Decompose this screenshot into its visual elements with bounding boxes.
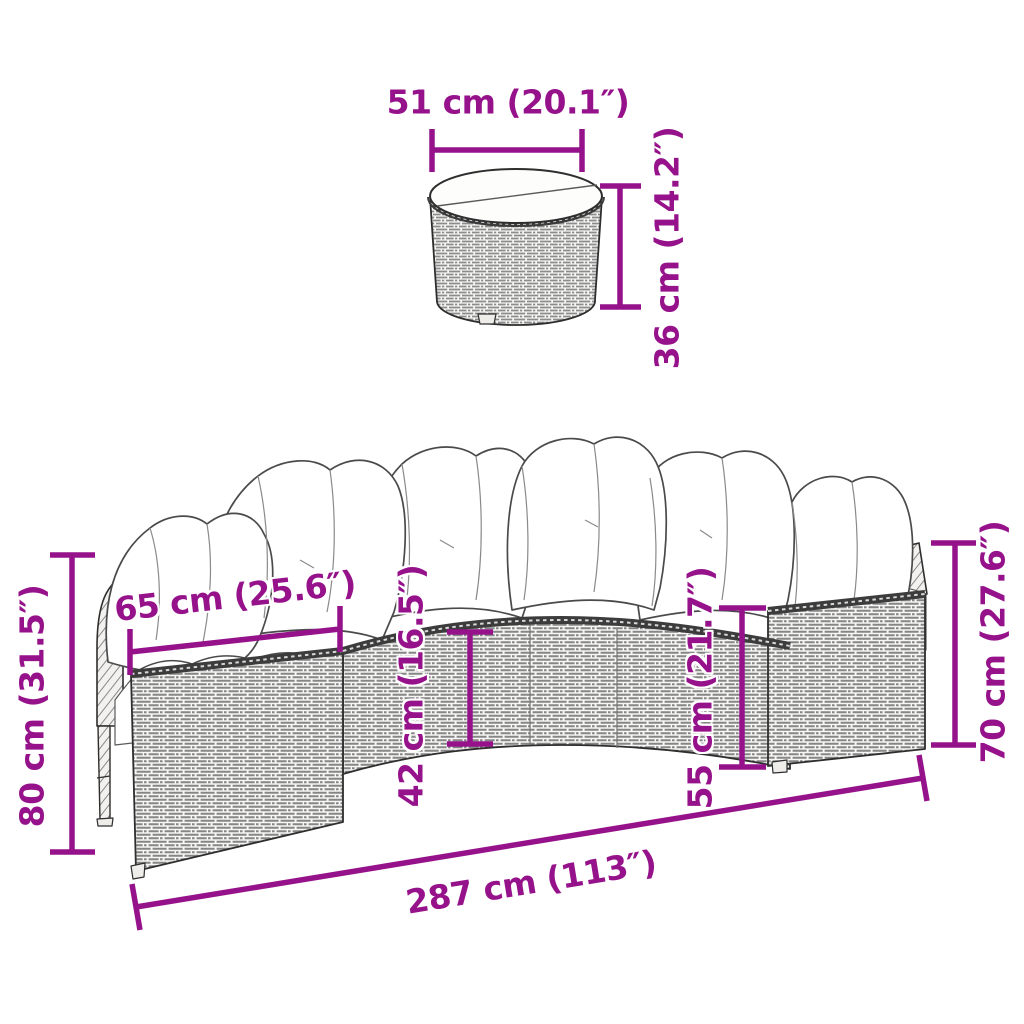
- sofa-left-leg: [98, 726, 110, 820]
- dim-line-table-height: [600, 186, 641, 307]
- table-foot: [478, 314, 496, 324]
- dimension-diagram: 51 cm (20.1″) 36 cm (14.2″) 65 cm (25.6″…: [0, 0, 1024, 1024]
- label-section-height: 55 cm (21.7″): [681, 567, 720, 810]
- table-drawing: [430, 169, 602, 325]
- front-panel-left: [131, 651, 343, 871]
- dim-line-side-height: [931, 543, 976, 745]
- label-table-height: 36 cm (14.2″): [648, 127, 687, 370]
- dim-line-table-width: [432, 129, 582, 172]
- sofa-drawing: [97, 437, 927, 879]
- label-back-height: 80 cm (31.5″): [13, 585, 52, 828]
- label-seat-height: 42 cm (16.5″): [392, 565, 431, 808]
- label-table-width: 51 cm (20.1″): [387, 83, 630, 122]
- dim-line-back-height: [50, 555, 95, 852]
- front-panel-right: [768, 594, 925, 766]
- label-side-height: 70 cm (27.6″): [974, 521, 1013, 764]
